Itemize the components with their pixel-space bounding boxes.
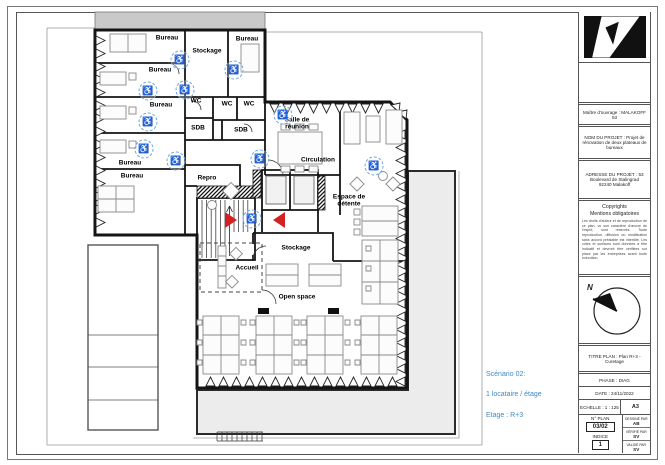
wheelchair-accessibility-icon: ♿ <box>274 106 293 125</box>
indice-label: INDICE <box>592 434 608 439</box>
wheelchair-accessibility-icon: ♿ <box>135 140 154 159</box>
date-field: DATE : 24/11/2022 <box>579 387 650 400</box>
scenario-line1: Scénario 02: <box>486 371 525 378</box>
neighbor-building-band <box>95 12 265 30</box>
signatures-cell: DESSINÉ PAR AB VÉRIFIÉ PAR SV VALIDÉ PAR… <box>623 415 651 453</box>
plan-number-label: N° PLAN <box>591 416 609 421</box>
owner-field: Maître d'ouvrage : MALAKOFF 53 <box>579 105 650 127</box>
title-block-bottom-grid: N° PLAN 03/02 INDICE 1 DESSINÉ PAR AB VÉ… <box>579 415 650 453</box>
room-label-bureau: Bureau <box>149 66 171 73</box>
wheelchair-accessibility-icon: ♿ <box>225 61 244 80</box>
paper-format: A3 <box>621 400 650 414</box>
room-label-bureau: Bureau <box>119 159 141 166</box>
floor-plan-svg <box>0 0 665 465</box>
wheelchair-accessibility-icon: ♿ <box>171 51 190 70</box>
plan-title-field: TITRE PLAN : Plan R+3 - Curetage <box>579 346 650 374</box>
room-label-accueil: Accueil <box>235 264 258 271</box>
room-label-wc: WC <box>244 100 255 107</box>
room-label-circulation: Circulation <box>301 156 335 163</box>
wheelchair-accessibility-icon: ♿ <box>365 157 384 176</box>
approved-by-value: SV <box>633 447 639 452</box>
plan-number-cell: N° PLAN 03/02 INDICE 1 <box>579 415 623 453</box>
room-label-wc: WC <box>191 97 202 104</box>
title-block: Maître d'ouvrage : MALAKOFF 53 NOM DU PR… <box>578 12 650 453</box>
checked-by-row: VÉRIFIÉ PAR SV <box>623 428 651 441</box>
wheelchair-accessibility-icon: ♿ <box>243 210 262 229</box>
scale-row: ECHELLE : 1 : 125 A3 <box>579 400 650 415</box>
copyright-section: Copyrights Mentions obligatoires Les dro… <box>579 201 650 277</box>
room-label-bureau: Bureau <box>236 35 258 42</box>
room-label-bureau: Bureau <box>150 101 172 108</box>
title-block-spacer <box>579 63 650 106</box>
scenario-note: Scénario 02: 1 locataire / étage Etage :… <box>486 360 542 421</box>
project-name-field: NOM DU PROJET : Projet de rénovation de … <box>579 127 650 161</box>
drawn-by-value: AB <box>633 421 640 426</box>
wheelchair-accessibility-icon: ♿ <box>139 82 158 101</box>
room-label-repro: Repro <box>198 174 217 181</box>
plan-number-value: 03/02 <box>586 422 615 432</box>
wheelchair-accessibility-icon: ♿ <box>139 113 158 132</box>
copyright-subtitle: Mentions obligatoires <box>582 211 647 217</box>
copyright-title: Copyrights <box>582 204 647 210</box>
room-label-stockage: Stockage <box>282 244 311 251</box>
scenario-line3: Etage : R+3 <box>486 412 523 419</box>
wheelchair-accessibility-icon: ♿ <box>167 152 186 171</box>
room-label-sdb: SDB <box>234 126 248 133</box>
room-label-stockage: Stockage <box>193 47 222 54</box>
logo-icon <box>584 16 646 58</box>
scale-field: ECHELLE : 1 : 125 <box>579 400 621 414</box>
wheelchair-accessibility-icon: ♿ <box>251 150 270 169</box>
north-arrow: N <box>579 277 650 347</box>
room-label-espace-detente: Espace de détente <box>333 194 365 209</box>
north-label: N <box>587 283 593 292</box>
approved-by-row: VALIDÉ PAR SV <box>623 441 651 453</box>
room-label-wc: WC <box>222 100 233 107</box>
room-label-open-space: Open space <box>279 293 316 300</box>
company-logo <box>579 12 650 63</box>
phase-field: PHASE : DIAG <box>579 374 650 387</box>
checked-by-value: SV <box>633 434 639 439</box>
wheelchair-accessibility-icon: ♿ <box>176 81 195 100</box>
scenario-line2: 1 locataire / étage <box>486 391 542 398</box>
room-label-sdb: SDB <box>191 124 205 131</box>
drawing-sheet: Bureau Bureau Stockage Bureau Bureau Bur… <box>0 0 665 465</box>
project-address-field: ADRESSE DU PROJET : 53 Boulevard de Stal… <box>579 161 650 201</box>
indice-value: 1 <box>592 440 609 450</box>
room-label-bureau: Bureau <box>156 34 178 41</box>
copyright-body: Les droits d'auteur et de reproduction d… <box>582 219 647 261</box>
room-label-bureau: Bureau <box>121 172 143 179</box>
terrace-left <box>88 245 158 430</box>
drawn-by-row: DESSINÉ PAR AB <box>623 415 651 428</box>
